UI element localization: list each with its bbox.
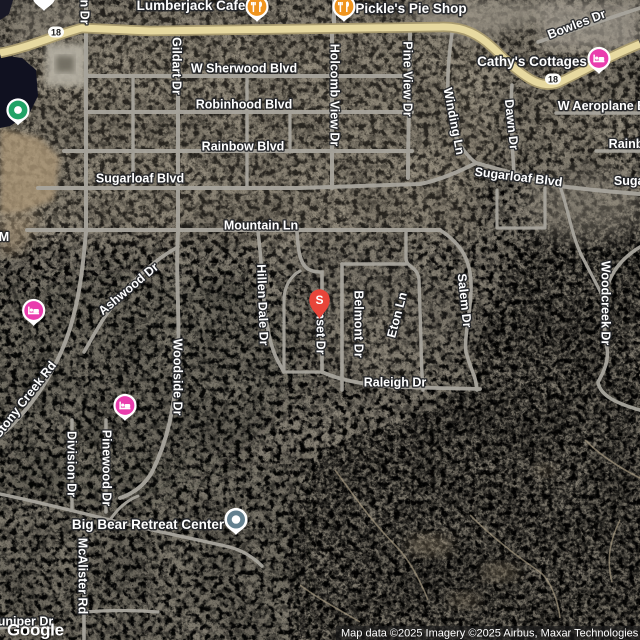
svg-text:S: S — [315, 293, 323, 307]
svg-text:Rainbow Blvd: Rainbow Blvd — [609, 137, 640, 151]
svg-text:Big Bear Retreat Center: Big Bear Retreat Center — [72, 517, 225, 532]
svg-text:Division Dr: Division Dr — [65, 431, 79, 497]
svg-text:Holcomb View Dr: Holcomb View Dr — [328, 44, 342, 147]
svg-text:Cathy's Cottages: Cathy's Cottages — [477, 54, 587, 69]
svg-text:Raleigh Dr: Raleigh Dr — [364, 376, 427, 390]
svg-text:Google: Google — [7, 621, 64, 640]
svg-text:18: 18 — [51, 28, 61, 38]
svg-text:Woodside Dr: Woodside Dr — [171, 339, 185, 416]
svg-text:Hillen Dale Dr: Hillen Dale Dr — [254, 264, 271, 346]
svg-text:Belmont Dr: Belmont Dr — [352, 290, 366, 358]
svg-text:18: 18 — [548, 75, 558, 85]
svg-text:Gildart Dr: Gildart Dr — [170, 37, 184, 95]
svg-text:W Sherwood Blvd: W Sherwood Blvd — [191, 62, 297, 76]
svg-text:Sugarloaf Blvd: Sugarloaf Blvd — [614, 174, 640, 188]
svg-text:McAlister Rd: McAlister Rd — [76, 538, 90, 614]
svg-text:Map data ©2025 Imagery ©2025 A: Map data ©2025 Imagery ©2025 Airbus, Max… — [341, 628, 639, 640]
svg-text:W Aeroplane Blvd: W Aeroplane Blvd — [558, 99, 640, 113]
svg-text:Mountain Ln: Mountain Ln — [224, 219, 298, 233]
svg-text:Lumberjack Cafe: Lumberjack Cafe — [137, 0, 246, 13]
svg-text:Robinhood Blvd: Robinhood Blvd — [196, 98, 293, 112]
svg-text:Pine View Dr: Pine View Dr — [401, 41, 415, 117]
svg-text:n Dr: n Dr — [78, 0, 92, 25]
svg-text:Rainbow Blvd: Rainbow Blvd — [202, 140, 285, 154]
svg-text:Pinewood Dr: Pinewood Dr — [100, 430, 114, 507]
svg-text:M: M — [0, 230, 9, 244]
svg-text:Woodcreek Dr: Woodcreek Dr — [599, 261, 613, 346]
svg-text:Sugarloaf Blvd: Sugarloaf Blvd — [96, 172, 184, 186]
svg-text:Pickle's Pie Shop: Pickle's Pie Shop — [355, 1, 466, 16]
